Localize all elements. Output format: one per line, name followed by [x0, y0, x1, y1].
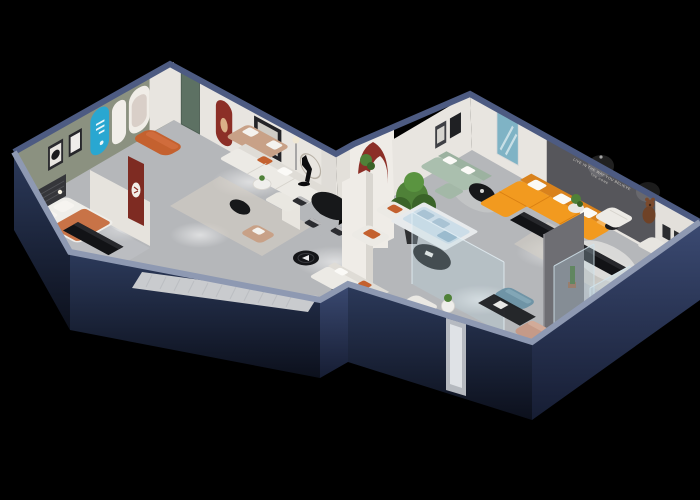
nightstand-lamp	[58, 190, 62, 194]
front-door-panel	[446, 318, 466, 396]
oval-logo-sign	[132, 183, 141, 198]
entry-disc	[293, 251, 319, 266]
showroom-render: LIVE IN THE WAY YOU BELIEVE THE HOME	[0, 0, 700, 500]
floorplan-scene: LIVE IN THE WAY YOU BELIEVE THE HOME	[0, 0, 700, 500]
